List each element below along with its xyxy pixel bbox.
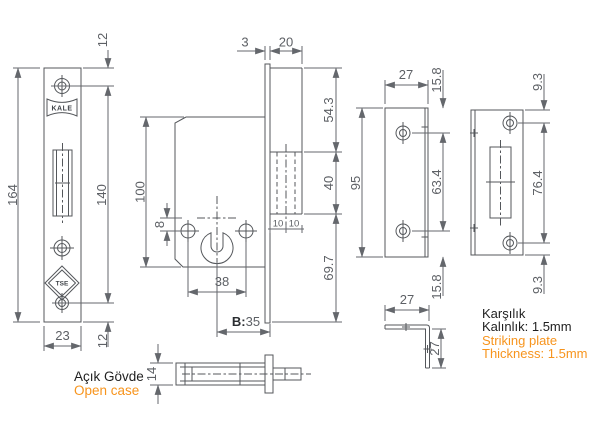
dim-case-depth: 20: [279, 35, 293, 50]
dim-angled-bottom: 9.3: [530, 276, 545, 294]
dim-angled-top: 9.3: [530, 73, 545, 91]
lock-body-side-view: 8 38 B:35 100 3 20 54.3 40 69.7: [133, 35, 343, 338]
dim-backset: B:35: [232, 314, 260, 329]
screw-hole-middle: [50, 236, 74, 260]
caption-open-case-en: Open case: [74, 383, 139, 398]
dim-offset-bottom: 12: [95, 334, 110, 348]
angled-hole-top: [503, 112, 550, 134]
kale-logo-text: KALE: [51, 106, 72, 113]
dim-strike-height: 95: [348, 176, 363, 190]
angled-hole-bottom: [503, 232, 550, 254]
dim-strike-middle: 63.4: [429, 169, 444, 194]
dim-bracket-leg-side: 27: [427, 341, 442, 355]
dim-strike-width: 27: [399, 67, 413, 82]
screw-hole-top: [51, 75, 114, 97]
lock-body-top-view: 14: [144, 344, 311, 404]
dim-strike-bottom: 15.8: [429, 274, 444, 299]
dim-case-thickness: 14: [144, 367, 159, 381]
caption-open-case-tr: Açık Gövde: [74, 369, 144, 384]
dim-bolt-half-left: 10: [273, 219, 284, 230]
dim-upper-section: 54.3: [321, 97, 336, 122]
dim-bolt-height: 40: [321, 176, 336, 190]
faceplate-front-view: KALE TSE 164 12 140 12 23: [5, 33, 114, 351]
dim-bolt-half-right: 10: [289, 219, 300, 230]
dim-body-height: 100: [133, 181, 148, 203]
dim-faceplate-width: 23: [55, 328, 69, 343]
dim-offset-top: 12: [95, 33, 110, 47]
dim-total-height: 164: [5, 184, 20, 206]
strike-angle-side-view: 27 27: [385, 292, 446, 368]
dim-strike-top: 15.8: [429, 67, 444, 92]
dim-cyl-hole-offset: 8: [152, 221, 167, 228]
backset-value: 35: [246, 314, 260, 329]
strike-hole-bottom: [396, 220, 450, 242]
dim-angled-middle: 76.4: [530, 170, 545, 195]
dim-lower-section: 69.7: [321, 255, 336, 280]
caption-strike-thickness-en: Thickness: 1.5mm: [482, 346, 587, 361]
dim-hole-span: 140: [94, 184, 109, 206]
lock-technical-drawing: KALE TSE 164 12 140 12 23: [0, 0, 600, 444]
dim-faceplate-thickness: 3: [241, 35, 248, 50]
tse-logo-text: TSE: [56, 281, 69, 288]
drawing-svg: KALE TSE 164 12 140 12 23: [0, 0, 600, 444]
strike-plate-flat-view: 95 15.8 63.4 15.8 27: [348, 67, 450, 300]
kale-logo: KALE: [47, 99, 77, 116]
backset-label: B:: [232, 314, 246, 329]
faceplate-edge: [265, 64, 270, 323]
caption-strike-thickness-tr: Kalınlık: 1.5mm: [482, 319, 572, 334]
captions: Açık Gövde Open case Karşılık Kalınlık: …: [74, 306, 587, 398]
dim-bracket-leg-top: 27: [400, 292, 414, 307]
strike-plate-angled-view: 9.3 76.4 9.3: [470, 73, 550, 294]
strike-hole-top: [396, 122, 450, 144]
